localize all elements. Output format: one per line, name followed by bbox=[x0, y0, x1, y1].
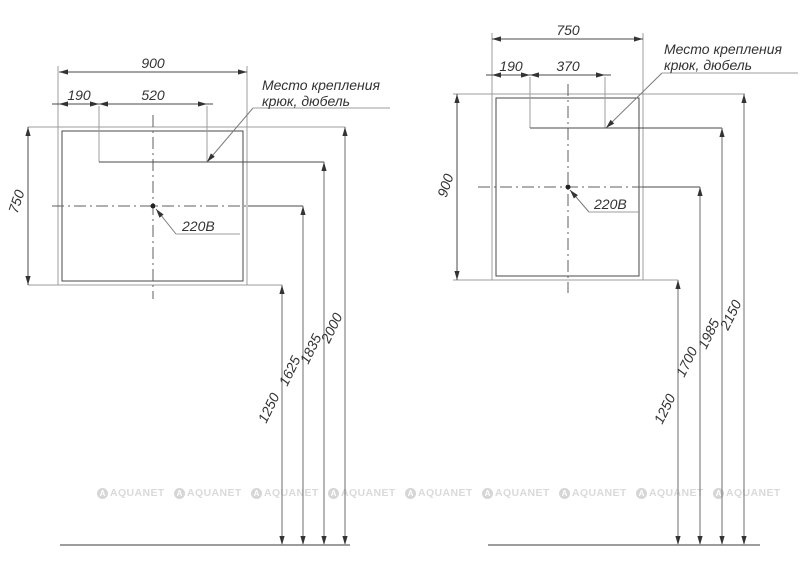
floor-dimensions-right: 1250 1700 1985 2150 bbox=[650, 94, 746, 545]
mount-note-line2-right: крюк, дюбель bbox=[664, 57, 752, 73]
floor-dim-label-4-right: 2150 bbox=[716, 297, 745, 333]
width-dimension-right: 750 bbox=[492, 22, 643, 42]
left-diagram: 900 190 520 750 Место кр bbox=[5, 55, 390, 545]
dim-label-height-right: 900 bbox=[434, 172, 457, 199]
mount-note-line1-left: Место крепления bbox=[262, 77, 381, 93]
power-label-left: 220В bbox=[181, 218, 215, 234]
mount-note-line2-left: крюк, дюбель bbox=[262, 93, 350, 109]
centerlines-left bbox=[52, 115, 303, 299]
dim-label-width-right: 750 bbox=[556, 22, 580, 38]
mount-note-left: Место крепления крюк, дюбель bbox=[207, 77, 390, 162]
hook-dimensions-left: 190 520 bbox=[52, 87, 213, 107]
mount-note-line1-right: Место крепления bbox=[664, 41, 783, 57]
dim-label-width-left: 900 bbox=[141, 55, 165, 71]
floor-dim-label-1-left: 1250 bbox=[254, 390, 282, 425]
mount-note-right: Место крепления крюк, дюбель bbox=[606, 41, 798, 128]
centerlines-right bbox=[478, 84, 700, 293]
mounting-diagram-svg: 900 190 520 750 Место кр bbox=[0, 0, 800, 562]
floor-dim-label-4-left: 2000 bbox=[317, 310, 346, 346]
height-dimension-right: 900 bbox=[434, 94, 460, 280]
floor-dimensions-left: 1250 1625 1835 2000 bbox=[254, 127, 347, 545]
dim-label-height-left: 750 bbox=[5, 188, 28, 215]
hook-line-right bbox=[530, 77, 722, 128]
width-dimension-left: 900 bbox=[59, 55, 247, 75]
power-label-right: 220В bbox=[593, 196, 627, 212]
floor-dim-label-2-right: 1700 bbox=[672, 344, 700, 379]
mirror-mounting-drawing: AAQUANET AAQUANET AAQUANET AAQUANET AAQU… bbox=[0, 0, 800, 562]
power-point-left: 220В bbox=[151, 204, 241, 235]
dim-label-hook-offset-right: 190 bbox=[499, 58, 523, 74]
floor-dim-label-1-right: 1250 bbox=[650, 391, 678, 426]
dim-label-hook-spacing-left: 520 bbox=[141, 87, 165, 103]
dim-label-hook-offset-left: 190 bbox=[67, 87, 91, 103]
power-point-right: 220В bbox=[566, 185, 641, 213]
hook-line-left bbox=[99, 106, 324, 162]
height-dimension-left: 750 bbox=[5, 127, 31, 285]
dim-label-hook-spacing-right: 370 bbox=[556, 58, 580, 74]
right-diagram: 750 190 370 900 Место кр bbox=[434, 22, 798, 545]
hook-dimensions-right: 190 370 bbox=[486, 58, 611, 78]
